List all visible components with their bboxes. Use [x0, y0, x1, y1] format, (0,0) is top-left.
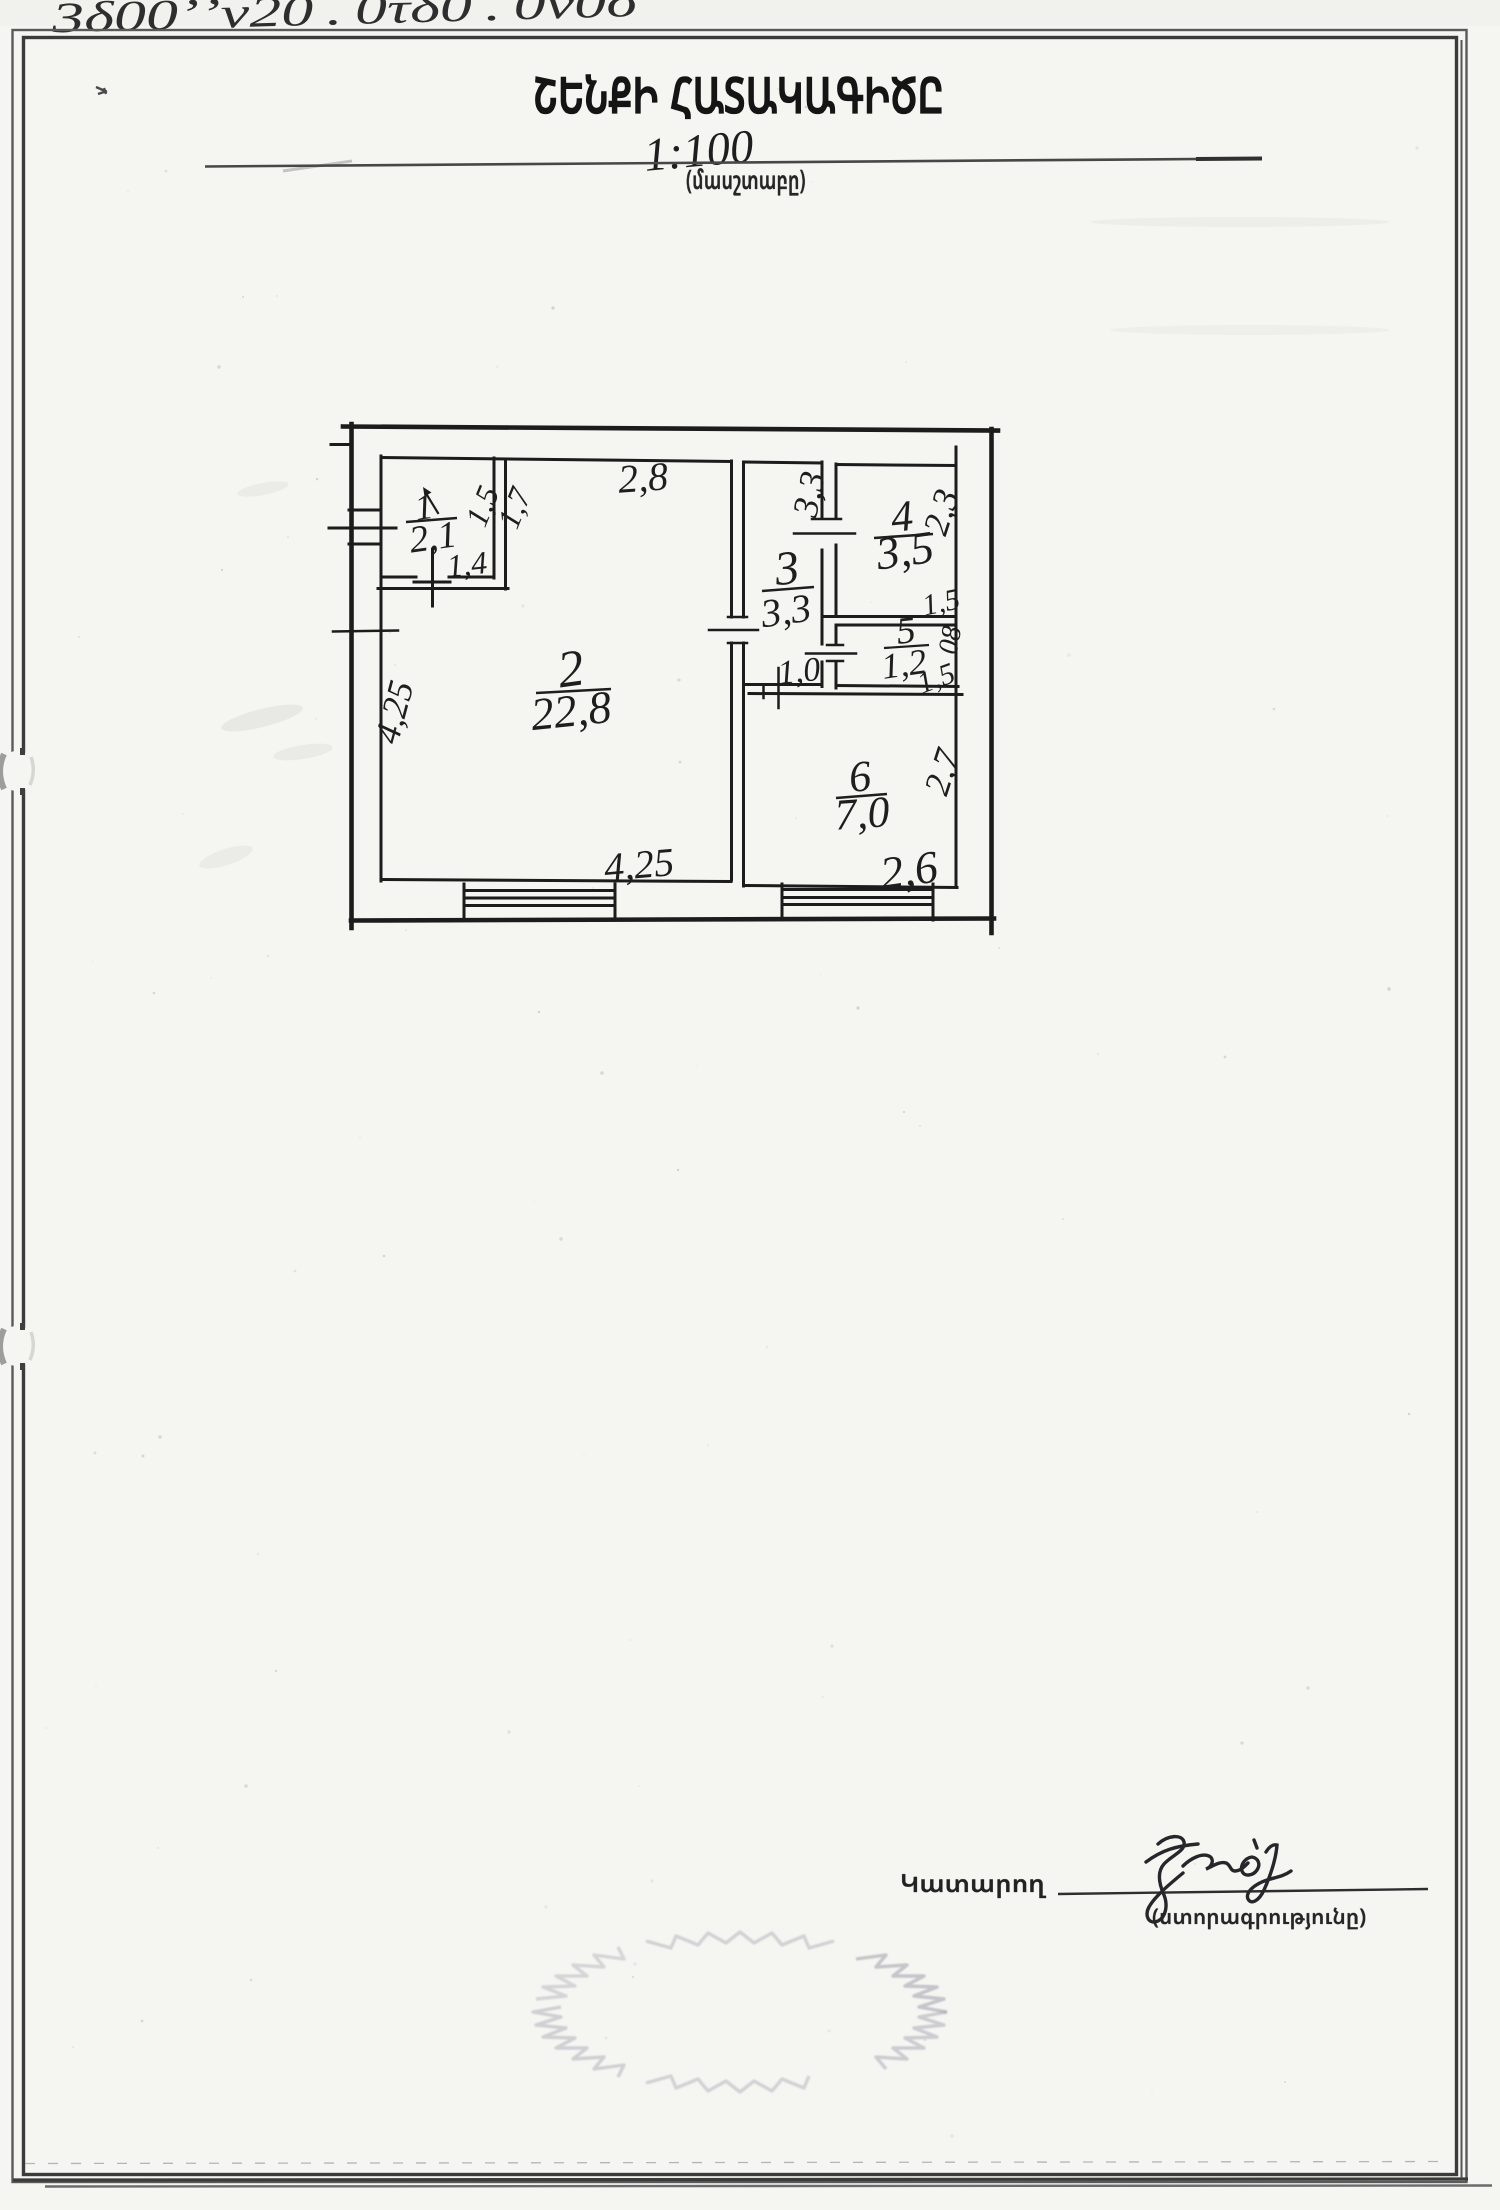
svg-text:22,8: 22,8 [528, 681, 613, 740]
svg-text:2,6: 2,6 [877, 841, 941, 900]
svg-text:08: 08 [933, 624, 968, 657]
svg-text:1,4: 1,4 [445, 544, 489, 584]
svg-text:1,0: 1,0 [776, 651, 822, 692]
svg-text:4,25: 4,25 [602, 839, 676, 890]
svg-text:7,0: 7,0 [833, 787, 891, 840]
svg-text:2,8: 2,8 [616, 453, 669, 501]
svg-text:3,3: 3,3 [757, 585, 814, 637]
